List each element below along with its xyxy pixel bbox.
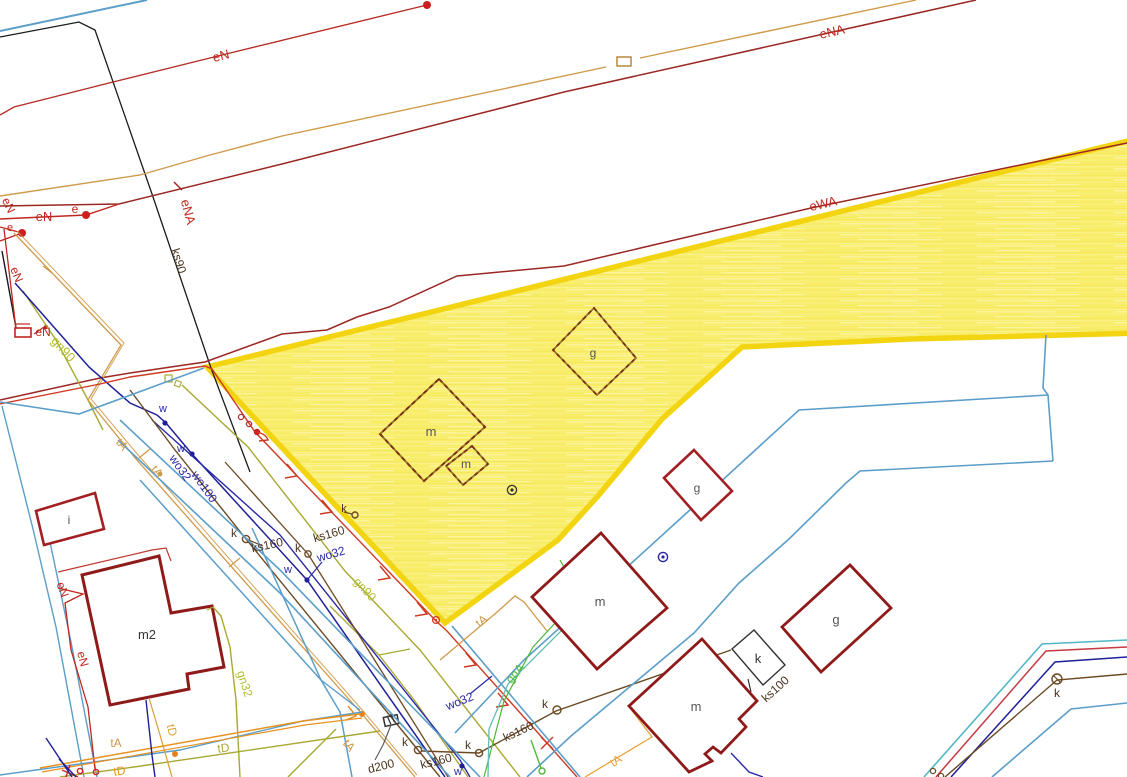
svg-text:eN: eN: [35, 325, 50, 339]
svg-text:tD: tD: [113, 763, 127, 777]
svg-text:g: g: [694, 481, 701, 495]
svg-text:m2: m2: [138, 627, 156, 642]
svg-text:e: e: [72, 202, 79, 216]
svg-text:w: w: [158, 403, 167, 415]
svg-text:m: m: [691, 699, 702, 714]
svg-text:tA: tA: [110, 736, 121, 750]
svg-text:g: g: [832, 612, 839, 627]
svg-text:g: g: [590, 346, 597, 360]
svg-text:e: e: [7, 222, 13, 234]
svg-text:k: k: [465, 738, 472, 752]
svg-text:k: k: [295, 541, 302, 555]
svg-text:k: k: [542, 697, 549, 711]
svg-text:k: k: [755, 651, 762, 666]
svg-text:k: k: [1054, 686, 1061, 700]
svg-text:k: k: [402, 735, 409, 749]
svg-text:tD: tD: [217, 740, 231, 756]
svg-text:i: i: [68, 513, 71, 527]
svg-text:w: w: [453, 766, 462, 777]
svg-text:m: m: [426, 424, 437, 439]
svg-text:w: w: [283, 564, 292, 576]
svg-text:eN: eN: [36, 209, 53, 224]
svg-text:k: k: [341, 503, 347, 515]
svg-text:k: k: [231, 526, 238, 540]
svg-text:m: m: [595, 594, 606, 609]
svg-text:m: m: [461, 457, 471, 471]
